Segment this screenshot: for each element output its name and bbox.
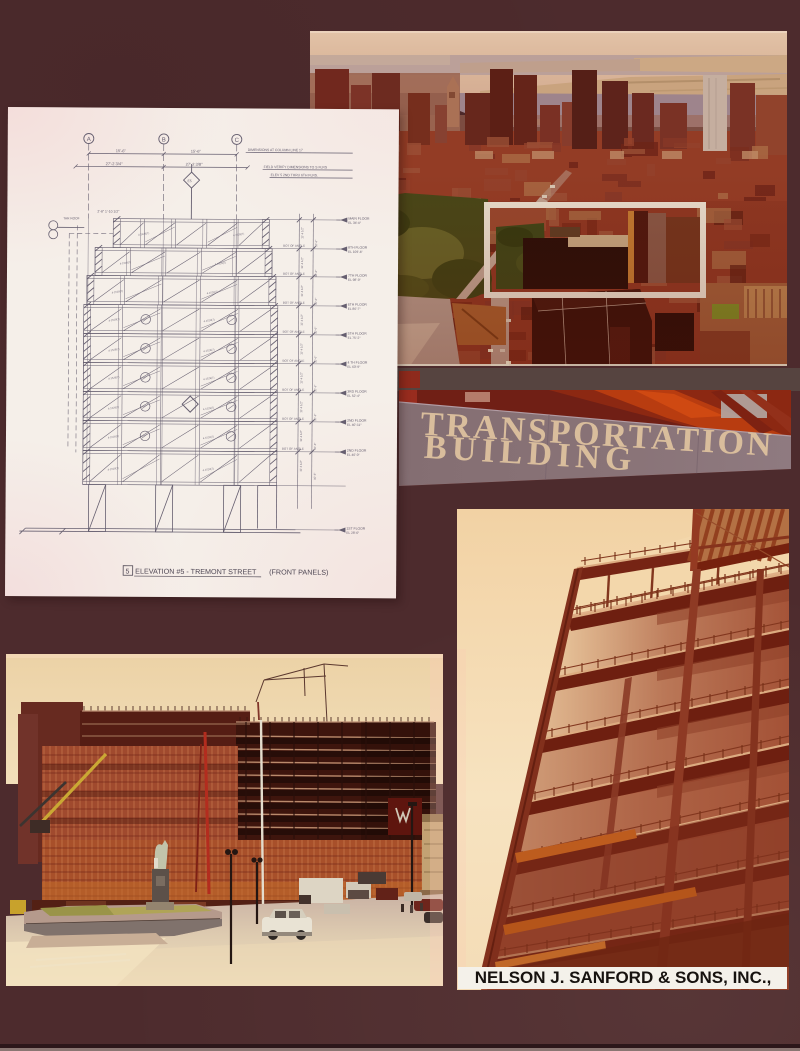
svg-text:4-1528(7): 4-1528(7) (233, 232, 245, 238)
svg-text:10'-6": 10'-6" (314, 327, 318, 334)
svg-text:15'-6": 15'-6" (116, 148, 127, 153)
svg-text:BOT OF ANGLE: BOT OF ANGLE (282, 447, 304, 451)
svg-text:10'-6": 10'-6" (313, 443, 317, 450)
svg-text:BOT OF ANGLE: BOT OF ANGLE (283, 301, 305, 305)
svg-text:TAR ROOF: TAR ROOF (63, 216, 79, 220)
svg-text:10'-6": 10'-6" (313, 356, 317, 363)
svg-text:FIELD VERIFY DIMENSIONS TO S F: FIELD VERIFY DIMENSIONS TO S FLRS (264, 165, 328, 169)
svg-text:EL 86'-7": EL 86'-7" (348, 307, 361, 311)
svg-text:C: C (235, 138, 240, 144)
svg-text:EL 63'-9": EL 63'-9" (347, 365, 360, 369)
svg-text:10'-6": 10'-6" (313, 473, 317, 480)
svg-text:11'-4 1/2": 11'-4 1/2" (299, 430, 303, 442)
svg-text:DIMENSIONS AT COLUMN LINE 17: DIMENSIONS AT COLUMN LINE 17 (248, 148, 303, 152)
svg-text:11'-4 1/2": 11'-4 1/2" (299, 343, 303, 355)
svg-text:11'-4 1/2": 11'-4 1/2" (300, 285, 304, 297)
svg-text:11'-4 1/2": 11'-4 1/2" (299, 401, 303, 413)
svg-text:BOT OF ANGLE: BOT OF ANGLE (282, 388, 304, 392)
svg-text:EL 109'-6": EL 109'-6" (348, 250, 363, 254)
svg-text:EL 40'-0": EL 40'-0" (347, 453, 360, 457)
svg-text:11'-4 1/2": 11'-4 1/2" (300, 257, 304, 269)
svg-text:BOT OF ANGLE: BOT OF ANGLE (283, 330, 305, 334)
svg-text:27'-2 3/8": 27'-2 3/8" (186, 162, 203, 167)
svg-text:4-1528(7): 4-1528(7) (202, 434, 214, 440)
svg-text:EL 75'-2": EL 75'-2" (348, 336, 361, 340)
svg-text:4-1528(7): 4-1528(7) (111, 289, 123, 295)
svg-text:ELEV 5 2ND THRU 6TH FLRS.: ELEV 5 2ND THRU 6TH FLRS. (271, 173, 319, 177)
svg-text:10'-6": 10'-6" (314, 298, 318, 305)
svg-text:EL 52'-4": EL 52'-4" (347, 394, 360, 398)
svg-text:11'-4 1/2": 11'-4 1/2" (300, 227, 304, 239)
svg-text:4-1528(7): 4-1528(7) (203, 317, 215, 323)
svg-text:NELSON J. SANFORD & SONS, INC.: NELSON J. SANFORD & SONS, INC., (475, 968, 772, 987)
svg-text:10'-6": 10'-6" (314, 270, 318, 277)
svg-text:11'-4 1/2": 11'-4 1/2" (300, 314, 304, 326)
svg-text:11'-4 1/2": 11'-4 1/2" (299, 460, 303, 472)
svg-text:15'-6": 15'-6" (191, 149, 202, 154)
svg-text:4-1528(7): 4-1528(7) (202, 466, 214, 472)
svg-text:BOT OF ANGLE: BOT OF ANGLE (282, 417, 304, 421)
svg-text:B: B (162, 137, 166, 143)
svg-text:5: 5 (125, 569, 129, 576)
svg-text:4-1528(7): 4-1528(7) (215, 260, 227, 266)
svg-text:A: A (87, 137, 91, 143)
svg-text:EL 34'-0": EL 34'-0" (348, 221, 361, 225)
svg-text:4-1528(7): 4-1528(7) (120, 260, 132, 266)
svg-text:10'-6": 10'-6" (313, 385, 317, 392)
svg-text:EL 40'-11": EL 40'-11" (347, 423, 361, 427)
svg-text:BOT OF ANGLE: BOT OF ANGLE (282, 359, 304, 363)
svg-text:E5: E5 (188, 179, 192, 183)
svg-text:27'-2 3/4": 27'-2 3/4" (106, 161, 123, 166)
svg-text:4-1528(7): 4-1528(7) (138, 231, 150, 237)
svg-text:10'-6": 10'-6" (314, 240, 318, 247)
svg-text:2'-8" 1'-10 1/2": 2'-8" 1'-10 1/2" (97, 210, 120, 214)
svg-text:11'-4 1/2": 11'-4 1/2" (299, 372, 303, 384)
svg-text:EL 28'-6": EL 28'-6" (346, 531, 359, 535)
svg-text:10'-6": 10'-6" (313, 414, 317, 421)
svg-text:EL 98'-0": EL 98'-0" (348, 278, 361, 282)
svg-text:BOT OF ANGLE: BOT OF ANGLE (283, 244, 305, 248)
svg-text:4-1528(7): 4-1528(7) (203, 375, 215, 381)
svg-text:ELEVATION #5 - TREMONT STREE: ELEVATION #5 - TREMONT STREET (135, 567, 257, 577)
svg-text:BOT OF ANGLE: BOT OF ANGLE (283, 272, 305, 276)
svg-text:4-1528(7): 4-1528(7) (206, 289, 218, 295)
svg-text:(FRONT PANELS): (FRONT PANELS) (269, 567, 328, 576)
